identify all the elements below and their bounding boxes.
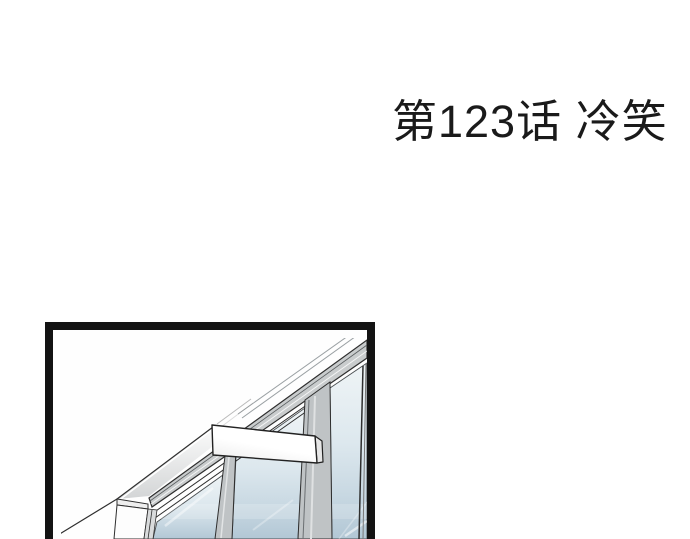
comic-panel — [45, 322, 375, 539]
storefront-illustration — [45, 322, 375, 539]
pillar-front-face — [114, 505, 148, 539]
chapter-title: 第123话 冷笑 — [392, 98, 668, 145]
comic-page: 第123话 冷笑 — [0, 0, 690, 539]
